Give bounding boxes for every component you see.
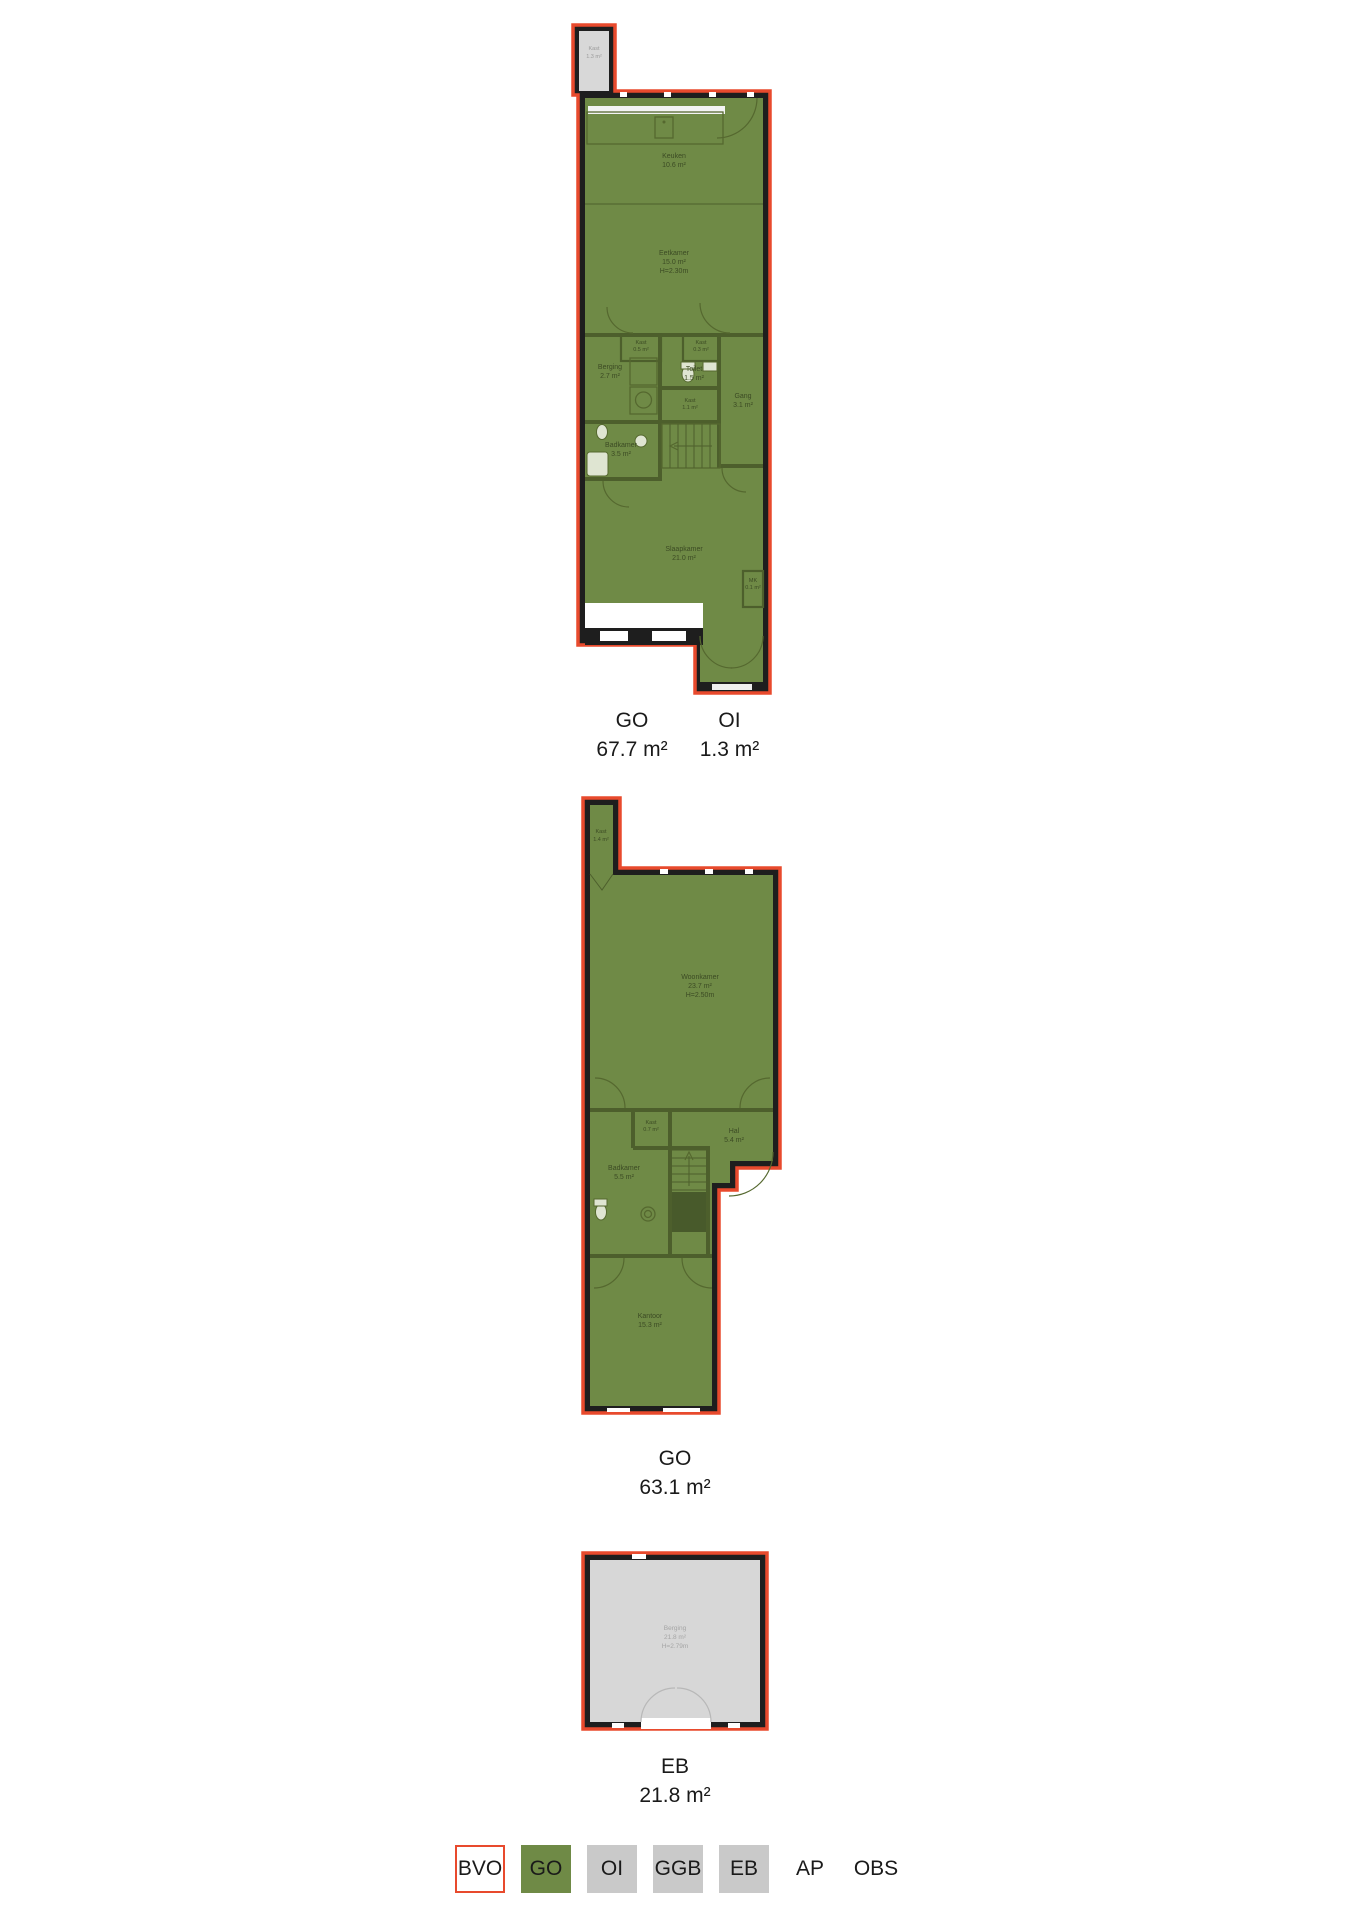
room-labels-floor-3: Berging21.8 m²H=2.79m [662,1625,689,1650]
legend-item-ggb: GGB [653,1845,703,1893]
floorplan-report-page: Kast1.3 m² Keuken10.6 m² Eetkamer15.0 m²… [0,0,1358,1920]
total-area: 21.8 m² [615,1781,735,1810]
total-code: EB [615,1752,735,1781]
legend-item-oi: OI [587,1845,637,1893]
room-label-berging-3: Berging21.8 m²H=2.79m [662,1625,689,1650]
total-area: 63.1 m² [615,1473,735,1502]
legend-label: OBS [854,1857,898,1881]
room-label-eetkamer: Eetkamer15.0 m²H=2.30m [659,250,690,275]
floor-2-total-go: GO 63.1 m² [615,1444,735,1502]
legend-label: AP [796,1857,824,1881]
legend-label: EB [730,1857,758,1881]
floor-plan-2: Kast1.4 m² Woonkamer23.7 m²H=2.50m Kast0… [565,790,790,1430]
total-code: GO [615,1444,735,1473]
legend-label: BVO [458,1857,502,1881]
legend-item-bvo: BVO [455,1845,505,1893]
legend-item-eb: EB [719,1845,769,1893]
legend-label: OI [601,1857,623,1881]
floor-1-total-oi: OI 1.3 m² [672,706,787,764]
floor-3-interior [590,1554,760,1729]
legend: BVO GO OI GGB EB AP OBS [455,1845,901,1893]
floor-1-interior [579,31,763,690]
total-code: OI [672,706,787,735]
legend-item-go: GO [521,1845,571,1893]
floor-3-total-eb: EB 21.8 m² [615,1752,735,1810]
legend-label: GO [530,1857,563,1881]
floor-plan-1: Kast1.3 m² Keuken10.6 m² Eetkamer15.0 m²… [565,15,780,705]
total-area: 1.3 m² [672,735,787,764]
floor-plan-3: Berging21.8 m²H=2.79m [575,1545,775,1740]
legend-label: GGB [655,1857,702,1881]
legend-item-obs: OBS [851,1845,901,1893]
legend-item-ap: AP [785,1845,835,1893]
